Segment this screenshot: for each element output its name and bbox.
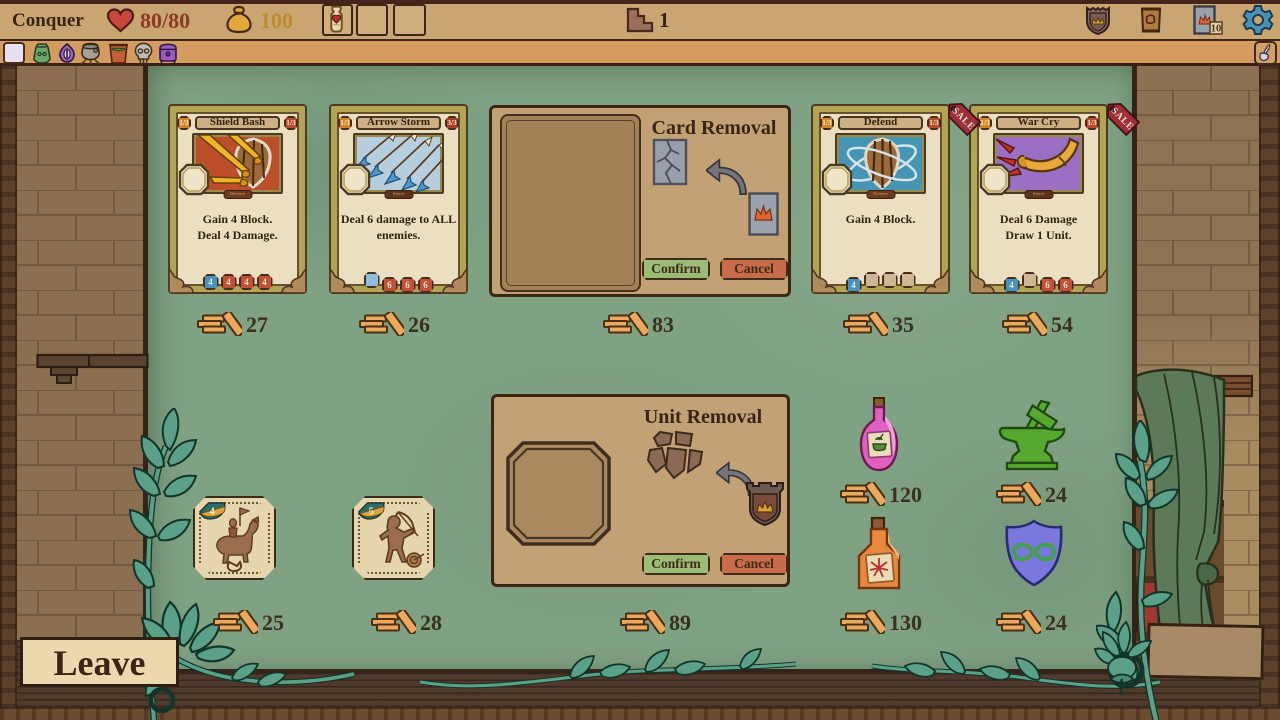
- svg-text:4: 4: [210, 506, 216, 517]
- svg-text:5: 5: [369, 506, 374, 517]
- svg-text:10: 10: [1211, 24, 1222, 35]
